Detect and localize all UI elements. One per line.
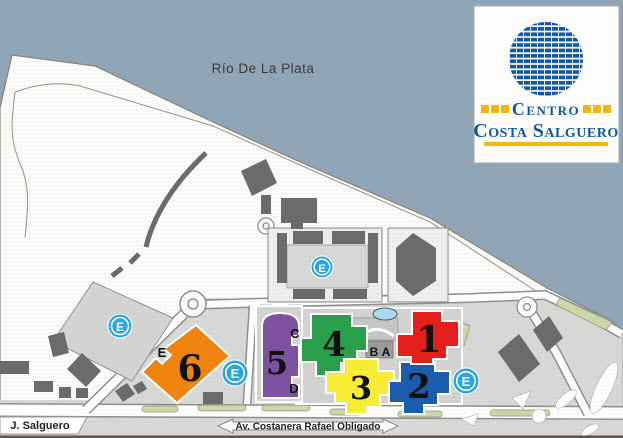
street-bottom-label: Av. Costanera Rafael Obligado: [235, 422, 380, 433]
map-canvas: 6 5 4 3 2 1 E C D B A E E E: [0, 0, 623, 438]
parking-badge-central: E: [311, 256, 333, 278]
pavilion-4-number: 4: [322, 325, 346, 365]
pavilion-6-number: 6: [177, 348, 202, 390]
parking-badge-east: E: [453, 368, 479, 394]
pavilion-1-number: 1: [416, 319, 441, 361]
logo-underline: [484, 142, 608, 146]
entrance-a-label: A: [382, 345, 391, 359]
pavilion-5-number: 5: [266, 344, 288, 382]
entrance-e-label: E: [158, 345, 167, 360]
globe-icon: [509, 22, 583, 96]
parking-e: E: [116, 320, 124, 334]
street-banner-bottom: Av. Costanera Rafael Obligado: [218, 419, 398, 433]
entrance-d-label: D: [289, 381, 298, 396]
site-map: 6 5 4 3 2 1 E C D B A E E E: [0, 0, 623, 438]
pavilion-3-number: 3: [350, 369, 372, 407]
street-banner-left: J. Salguero: [0, 417, 87, 434]
river-label: Río De La Plata: [212, 61, 315, 76]
pavilion-2-number: 2: [407, 367, 431, 407]
parking-e: E: [318, 263, 325, 275]
logo-line1: Centro: [512, 99, 580, 119]
entrance-c-label: C: [290, 326, 300, 341]
venue-logo: Centro Costa Salguero: [473, 6, 619, 163]
parking-badge-west: E: [108, 314, 132, 338]
parking-badge-mid: E: [222, 360, 248, 386]
parking-e: E: [231, 366, 240, 381]
parking-e: E: [462, 374, 471, 389]
logo-line2: Costa Salguero: [473, 120, 618, 142]
street-left-label: J. Salguero: [10, 420, 70, 432]
entrance-b-label: B: [370, 345, 379, 359]
